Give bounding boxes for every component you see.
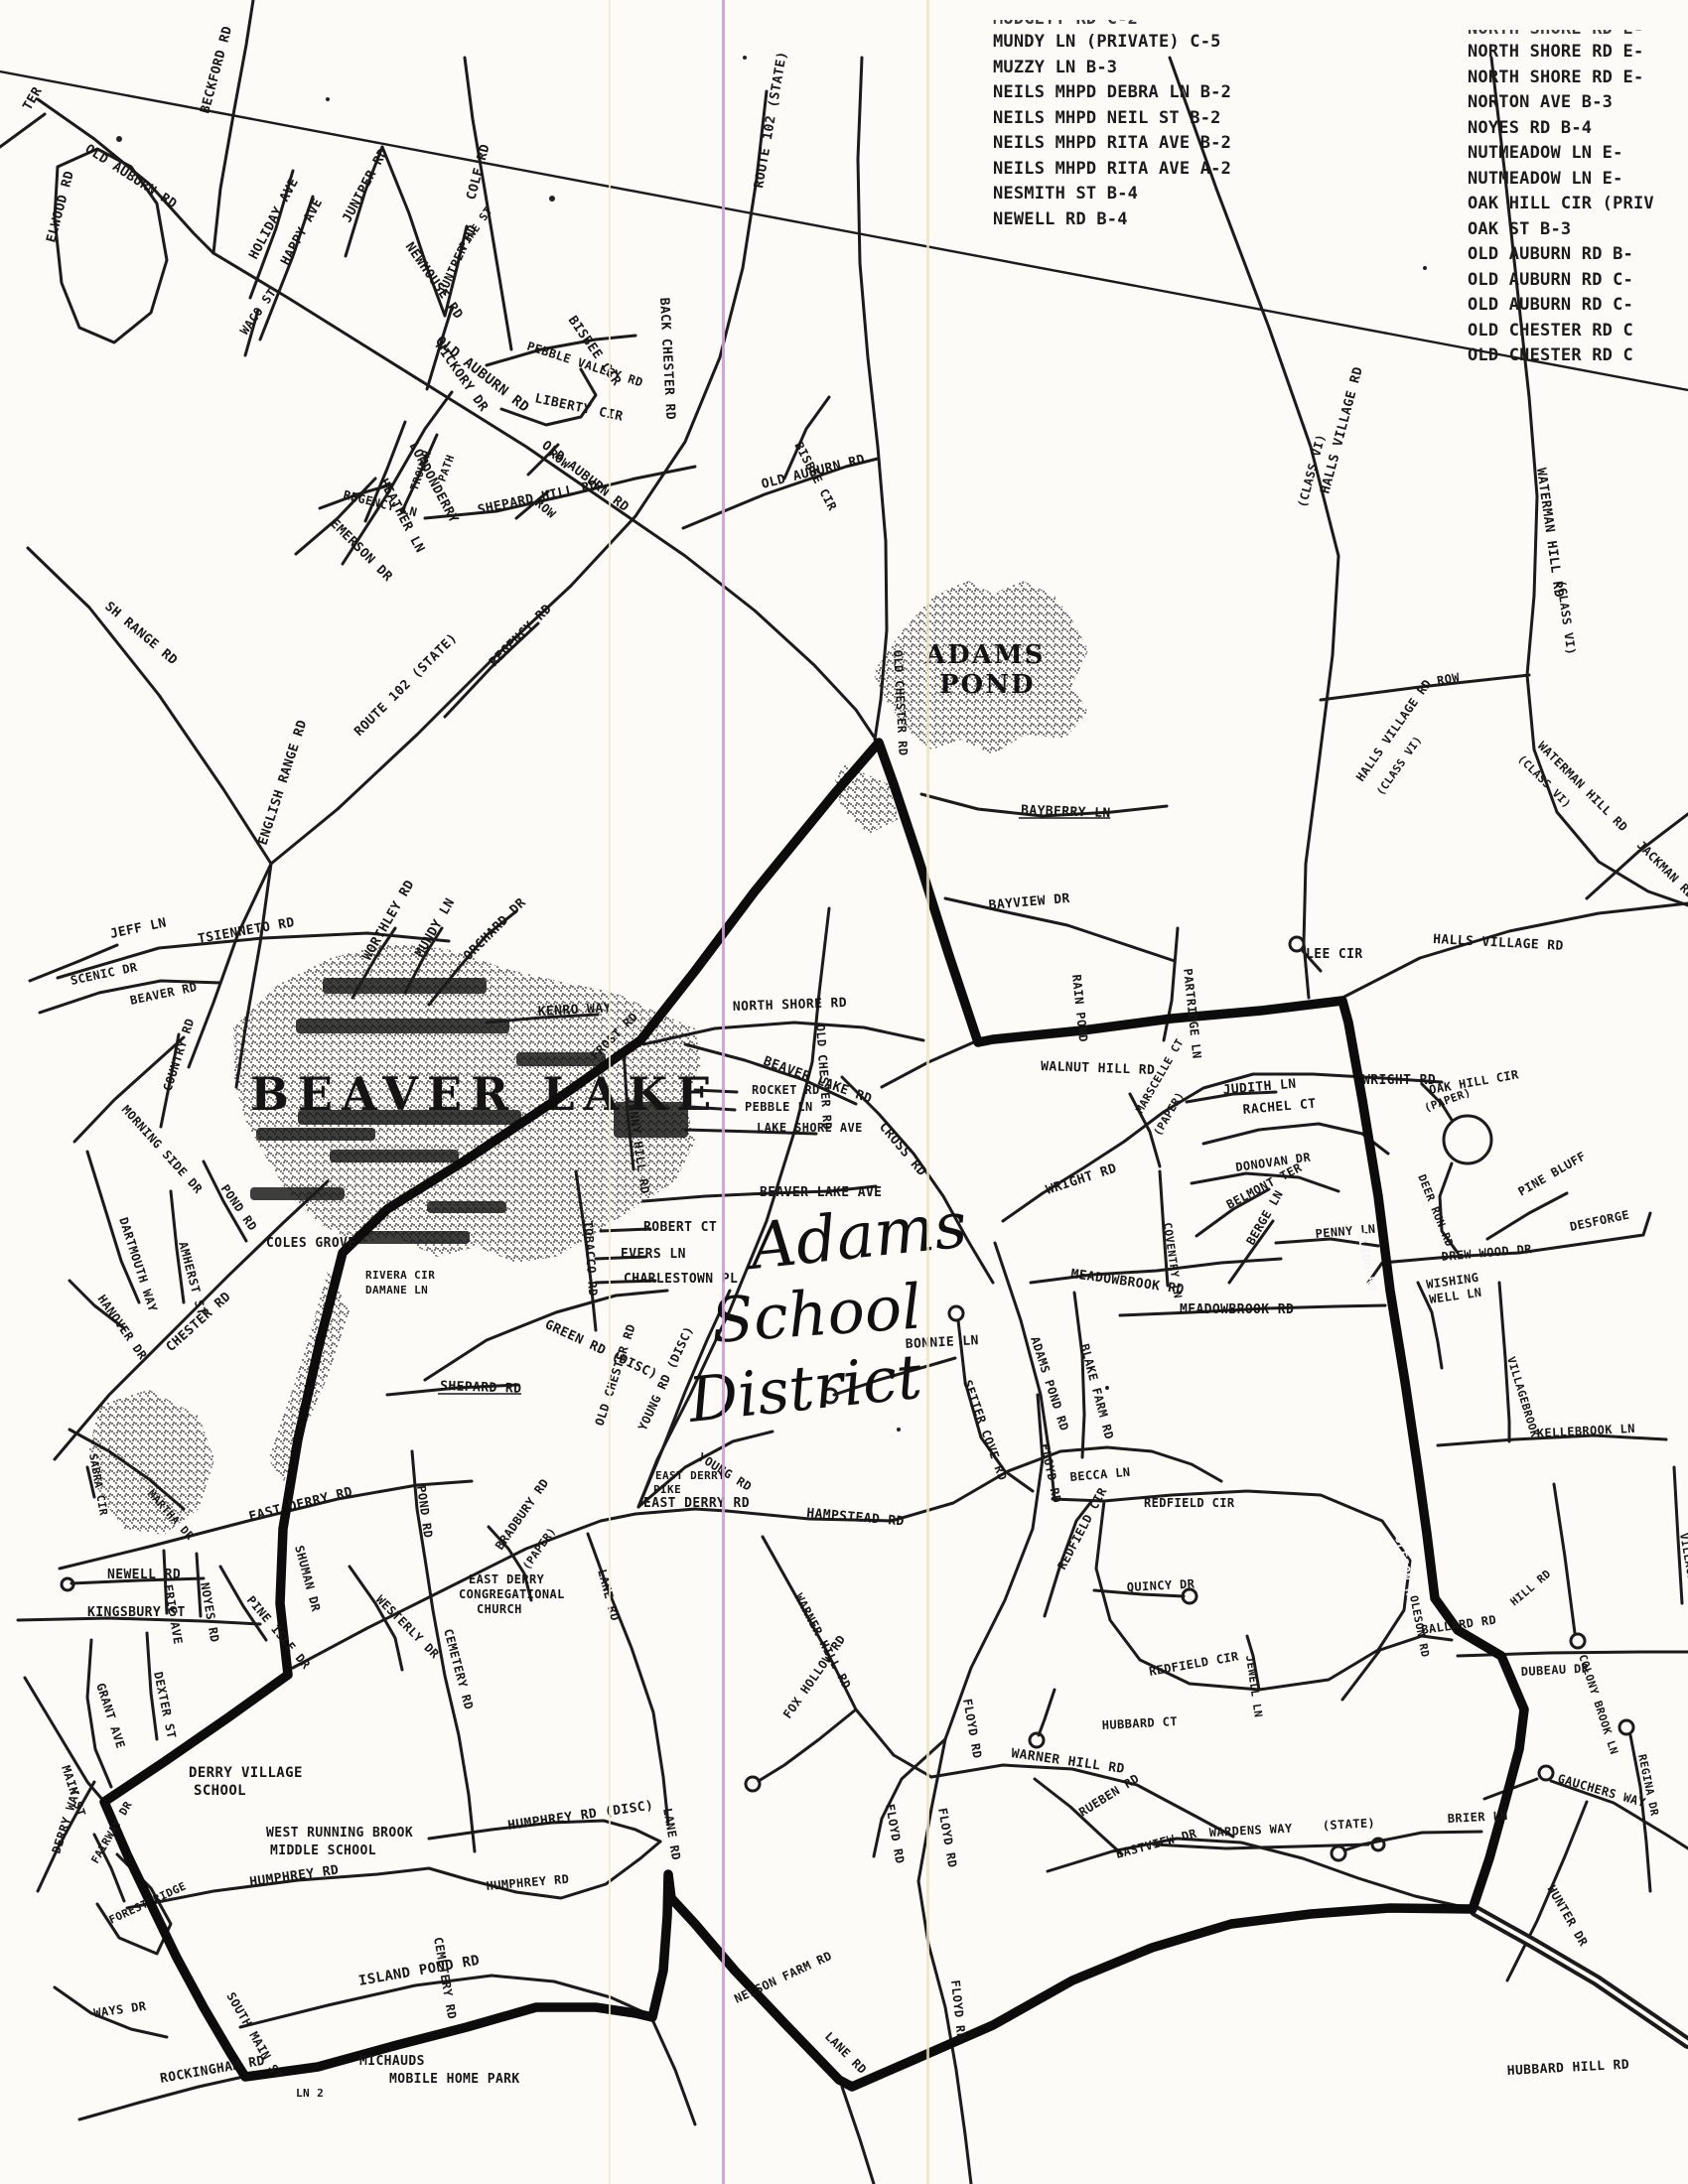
- scan-speck: [897, 1428, 901, 1432]
- map-label: FLOYD RD: [935, 1807, 959, 1869]
- map-label: SHUMAN DR: [292, 1544, 323, 1613]
- lake-street-smear: [330, 1150, 459, 1162]
- map-label: COLES GROVE: [266, 1236, 356, 1251]
- map-label: EAST DERRY RD: [643, 1496, 750, 1511]
- map-canvas: ADAMSPONDBEAVER LAKETEROLD AUBURN RDELWO…: [0, 0, 1688, 2184]
- map-label: HILL RD: [1508, 1568, 1554, 1609]
- map-label: BECKFORD RD: [198, 25, 235, 115]
- map-label: MIDDLE SCHOOL: [270, 1843, 376, 1858]
- map-label: ROUTE 102 (STATE): [752, 50, 790, 189]
- road: [763, 1537, 931, 1777]
- index-entry: OAK HILL CIR (PRIV: [1468, 192, 1688, 217]
- map-label: EAST DERRY: [469, 1572, 545, 1586]
- index-entry: NORTH SHORE RD E-: [1468, 30, 1688, 40]
- map-label: LN 2: [296, 2087, 324, 2100]
- index-entry: MUDGETT RD C-2: [993, 20, 1231, 30]
- index-entry: MUZZY LN B-3: [993, 56, 1231, 81]
- road: [28, 548, 271, 864]
- map-label: TER: [20, 84, 45, 113]
- map-label: REGENCY LN: [342, 487, 418, 519]
- index-entry: NEILS MHPD DEBRA LN B-2: [993, 80, 1231, 106]
- index-entry: NEILS MHPD NEIL ST B-2: [993, 106, 1231, 132]
- culdesac-circle: [1571, 1634, 1585, 1648]
- map-label: FLOYD RD: [960, 1698, 984, 1760]
- map-label: HANOVER DR: [95, 1293, 150, 1363]
- map-label: CONGREGATIONAL: [459, 1587, 565, 1601]
- map-label: WALNUT HILL RD: [1041, 1059, 1156, 1078]
- map-label: WEST RUNNING BROOK: [266, 1826, 413, 1841]
- map-label: OLESON RD: [1392, 1535, 1419, 1604]
- town-boundary-line: [0, 71, 1688, 390]
- handwritten-title-line: Adams: [742, 1188, 970, 1285]
- adams-pond-label: POND: [939, 670, 1036, 700]
- scan-speck: [116, 136, 122, 142]
- map-label: BECCA LN: [1069, 1465, 1131, 1484]
- map-label: HUNTER DR: [1544, 1883, 1591, 1950]
- index-entry: MUNDY LN (PRIVATE) C-5: [993, 30, 1231, 56]
- road: [1487, 1193, 1567, 1239]
- map-label: JACKMAN RD: [1634, 838, 1688, 901]
- map-label: SCHOOL: [194, 1783, 246, 1799]
- map-label: WARNER HILL RD: [1010, 1746, 1125, 1777]
- index-entry: NEILS MHPD RITA AVE A-2: [993, 157, 1231, 183]
- culdesac-circle: [1030, 1733, 1044, 1747]
- map-label: LIBERTY CIR: [533, 391, 625, 424]
- road: [650, 2015, 695, 2124]
- map-label: (PAPER): [1151, 1089, 1187, 1138]
- index-entry: NOYES RD B-4: [1468, 116, 1688, 142]
- road: [0, 114, 45, 147]
- lake-street-smear: [427, 1201, 506, 1213]
- map-label: GAUCHERS WAY: [1556, 1771, 1647, 1810]
- map-label: WACO ST: [237, 286, 279, 338]
- map-label: HUBBARD CT: [1101, 1714, 1178, 1732]
- lake-street-smear: [250, 1187, 345, 1200]
- road: [882, 1040, 978, 1087]
- map-label: HALLS VILLAGE RD: [1433, 932, 1564, 954]
- map-label: CHURCH: [477, 1602, 522, 1616]
- index-entry: NUTMEADOW LN E-: [1468, 167, 1688, 193]
- scan-speck: [743, 56, 747, 60]
- road: [842, 2087, 874, 2184]
- index-entry: NESMITH ST B-4: [993, 182, 1231, 207]
- index-entry: OLD AUBURN RD B-: [1468, 242, 1688, 268]
- map-label: ROUTE 102 (STATE): [352, 630, 461, 740]
- map-label: NORTH SHORE RD: [733, 996, 848, 1015]
- map-label: ROCKINGHAM RD: [159, 2054, 266, 2087]
- scanner-streak: [722, 0, 725, 2184]
- map-label: DAMANE LN: [365, 1284, 428, 1297]
- map-label: SETTER COVE RD: [960, 1378, 1010, 1482]
- map-label: OAK HILL CIR: [1428, 1067, 1520, 1097]
- map-label: ROCKET RD: [752, 1083, 820, 1097]
- map-label: ADAMS POND RD: [1028, 1335, 1071, 1433]
- map-label: PINE BLUFF: [1516, 1149, 1589, 1198]
- map-label: LANE RD: [660, 1807, 683, 1861]
- map-label: BAYVIEW DR: [988, 891, 1070, 913]
- scanner-streak: [609, 0, 611, 2184]
- index-entry: OLD AUBURN RD C-: [1468, 293, 1688, 319]
- map-label: REDFIELD CIR: [1144, 1496, 1235, 1510]
- culdesac-circle: [1332, 1846, 1345, 1860]
- index-entry: OAK ST B-3: [1468, 217, 1688, 243]
- road: [127, 1842, 660, 1908]
- road: [465, 58, 511, 349]
- road: [1074, 1293, 1084, 1457]
- map-label: ROBERT CT: [643, 1220, 717, 1235]
- map-label: OLSON RD: [1354, 1231, 1379, 1294]
- map-label: KINGSBURY ST: [87, 1605, 186, 1620]
- map-label: (STATE): [1322, 1816, 1375, 1833]
- map-label: JEWELL LN: [1243, 1655, 1265, 1718]
- map-label: NEWELL RD: [107, 1568, 181, 1582]
- index-entry: OLD AUBURN RD C-: [1468, 268, 1688, 294]
- map-label: PIKE: [653, 1483, 681, 1496]
- index-entry: NORTH SHORE RD E-: [1468, 66, 1688, 91]
- map-label: HUBBARD HILL RD: [1506, 2058, 1629, 2079]
- map-label: SHEPARD HILL RD: [477, 478, 600, 518]
- map-label: REDFIELD CIR: [1148, 1649, 1240, 1679]
- map-label: WARDENS WAY: [1208, 1822, 1293, 1840]
- map-label: WATERMAN HILL RD: [1533, 467, 1566, 598]
- index-entry: NUTMEADOW LN E-: [1468, 141, 1688, 167]
- map-label: BACK CHESTER RD: [656, 297, 677, 420]
- road: [931, 1765, 1233, 1837]
- scanned-map-page: ADAMSPONDBEAVER LAKETEROLD AUBURN RDELWO…: [0, 0, 1688, 2184]
- map-label: CEMETERY RD: [441, 1627, 476, 1711]
- map-label: DUBEAU DR: [1520, 1661, 1590, 1679]
- scan-speck: [326, 97, 330, 101]
- map-label: SH RANGE RD: [101, 600, 180, 669]
- adams-pond-label: ADAMS: [924, 640, 1045, 670]
- map-label: CEMETERY RD: [431, 1936, 459, 2020]
- map-label: LANE RD: [595, 1568, 622, 1622]
- index-entry: NORTH SHORE RD E-: [1468, 40, 1688, 66]
- lake-street-smear: [614, 1102, 688, 1138]
- map-label: HAMPSTEAD RD: [806, 1506, 906, 1530]
- road: [1344, 1832, 1481, 1850]
- map-label: ROW: [1436, 670, 1461, 688]
- map-label: FLOYD RD: [883, 1803, 907, 1865]
- lake-street-smear: [355, 1231, 470, 1244]
- map-label: ORCHARD DR: [461, 895, 529, 964]
- road: [1554, 1484, 1575, 1633]
- map-label: JUNIPER RD: [435, 222, 480, 297]
- index-entry: OLD CHESTER RD C: [1468, 319, 1688, 344]
- map-label: PATH: [436, 453, 458, 483]
- map-label: EASTVIEW DR: [1114, 1827, 1198, 1861]
- culdesac-circle: [1619, 1720, 1633, 1734]
- street-index-left-column: MUDGETT RD C-2MUNDY LN (PRIVATE) C-5MUZZ…: [993, 20, 1231, 232]
- index-entry: NEWELL RD B-4: [993, 207, 1231, 233]
- road: [759, 1709, 856, 1781]
- scan-speck: [549, 196, 555, 202]
- map-label: JEFF LN: [109, 915, 168, 942]
- map-label: OLD AUBURN RD: [82, 142, 180, 212]
- culdesac-circle: [1290, 937, 1304, 951]
- map-label: OLD CHESTER RD: [593, 1322, 638, 1428]
- map-label: HUMPHREY RD: [248, 1863, 340, 1890]
- road: [1342, 1636, 1452, 1700]
- map-label: RIVERA CIR: [365, 1269, 435, 1282]
- scan-speck: [1105, 1386, 1109, 1390]
- culdesac-circle: [746, 1777, 760, 1791]
- map-label: COLE RD: [464, 143, 492, 203]
- road: [858, 58, 887, 740]
- map-label: DERRY VILLAGE: [189, 1765, 303, 1781]
- scanner-streak: [926, 0, 929, 2184]
- map-label: JUNIPER RD: [340, 146, 391, 225]
- map-label: REGENCY RD: [487, 602, 555, 670]
- road: [945, 898, 1175, 961]
- map-label: WRIGHT RD: [1045, 1161, 1119, 1198]
- map-label: RACHEL CT: [1242, 1097, 1317, 1118]
- map-label: MICHAUDS: [359, 2054, 425, 2069]
- culdesac-circle: [1444, 1116, 1491, 1163]
- map-label: MOBILE HOME PARK: [389, 2072, 520, 2087]
- map-label: EVERS LN: [621, 1247, 686, 1262]
- map-label: HALLS VILLAGE RD: [1318, 365, 1366, 495]
- map-label: DESFORGE: [1569, 1208, 1631, 1234]
- road: [695, 1090, 737, 1092]
- map-label: LEE CIR: [1306, 947, 1363, 962]
- map-label: CROSS RD: [876, 1120, 929, 1179]
- map-label: ENGLISH RANGE RD: [256, 718, 311, 847]
- map-label: ELWOOD RD: [44, 170, 77, 244]
- lake-street-smear: [256, 1128, 375, 1141]
- map-label: EMERSON DR: [327, 516, 395, 585]
- lake-street-smear: [296, 1019, 509, 1033]
- map-label: MEADOWBROOK RD: [1180, 1302, 1294, 1317]
- road: [918, 1395, 1043, 2184]
- map-label: PEBBLE LN: [745, 1100, 813, 1114]
- map-label: GRANT AVE: [93, 1682, 128, 1751]
- map-label: BEAVER LAKE AVE: [760, 1185, 882, 1200]
- culdesac-circle: [949, 1306, 963, 1320]
- street-index-right-column: NORTH SHORE RD E-NORTH SHORE RD E-NORTH …: [1468, 30, 1688, 369]
- culdesac-circle: [1539, 1766, 1553, 1780]
- index-entry: NEILS MHPD RITA AVE B-2: [993, 131, 1231, 157]
- map-label: (CLASS VI): [1554, 579, 1578, 655]
- map-label: WRIGHT RD: [1362, 1073, 1436, 1088]
- lake-street-smear: [298, 1110, 521, 1125]
- map-label: WAYS DR: [92, 1999, 147, 2020]
- map-label: DEER RUN RD: [1415, 1172, 1456, 1248]
- map-label: DREW WOOD DR: [1441, 1242, 1533, 1264]
- road: [1039, 1690, 1055, 1735]
- map-label: LAKE SHORE AVE: [757, 1121, 863, 1135]
- scan-speck: [1423, 266, 1427, 270]
- index-entry: NORTON AVE B-3: [1468, 90, 1688, 116]
- index-entry: OLD CHESTER RD C: [1468, 343, 1688, 369]
- map-label: TSIENNETO RD: [197, 915, 296, 947]
- map-label: HUMPHREY RD: [486, 1872, 570, 1893]
- map-label: EAST DERRY RD: [247, 1484, 353, 1524]
- road: [1203, 1124, 1388, 1154]
- map-label: GREEN RD (DISC): [542, 1317, 659, 1383]
- map-label: FLOYD RD: [948, 1979, 968, 2041]
